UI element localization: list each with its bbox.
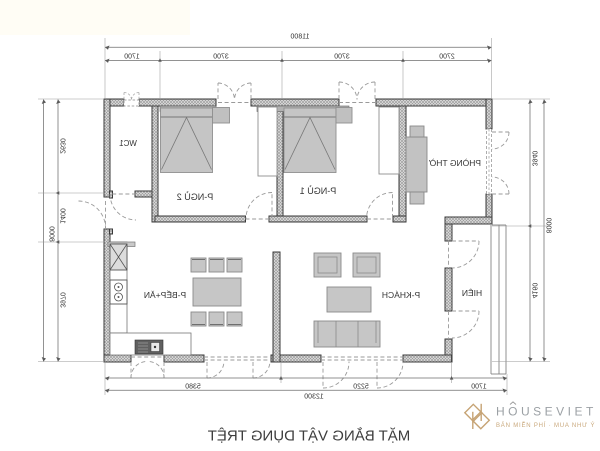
svg-text:HIÊN: HIÊN (462, 288, 482, 298)
svg-text:3940: 3940 (531, 151, 538, 167)
svg-text:P-BẾP+ĂN: P-BẾP+ĂN (144, 290, 186, 300)
svg-text:P-KHÁCH: P-KHÁCH (382, 290, 420, 300)
svg-text:2630: 2630 (59, 138, 66, 154)
svg-text:1700: 1700 (124, 54, 140, 61)
svg-text:4160: 4160 (531, 283, 538, 299)
svg-text:P-NGỦ 1: P-NGỦ 1 (300, 185, 337, 196)
svg-text:1400: 1400 (59, 208, 66, 224)
svg-text:PHÒNG THỜ: PHÒNG THỜ (428, 158, 481, 168)
svg-text:11800: 11800 (290, 34, 309, 41)
svg-text:5380: 5380 (185, 384, 201, 391)
svg-text:3700: 3700 (213, 54, 229, 61)
svg-text:8000: 8000 (545, 218, 552, 234)
svg-text:8000: 8000 (48, 226, 55, 242)
svg-text:3970: 3970 (59, 292, 66, 308)
svg-text:12300: 12300 (304, 394, 324, 401)
svg-text:P-NGỦ 2: P-NGỦ 2 (177, 191, 214, 202)
svg-text:MẶT BẰNG VẬT DỤNG TRỆT: MẶT BẰNG VẬT DỤNG TRỆT (208, 427, 411, 445)
svg-text:1700: 1700 (471, 384, 487, 391)
svg-text:WC1: WC1 (119, 139, 137, 148)
svg-text:2700: 2700 (439, 54, 455, 61)
svg-text:3700: 3700 (334, 54, 350, 61)
svg-text:BẢN MIỄN PHÍ · MUA NHƯ Ý: BẢN MIỄN PHÍ · MUA NHƯ Ý (496, 422, 595, 429)
svg-text:HOUSEVIET: HOUSEVIET (496, 405, 597, 419)
svg-text:5220: 5220 (353, 384, 369, 391)
